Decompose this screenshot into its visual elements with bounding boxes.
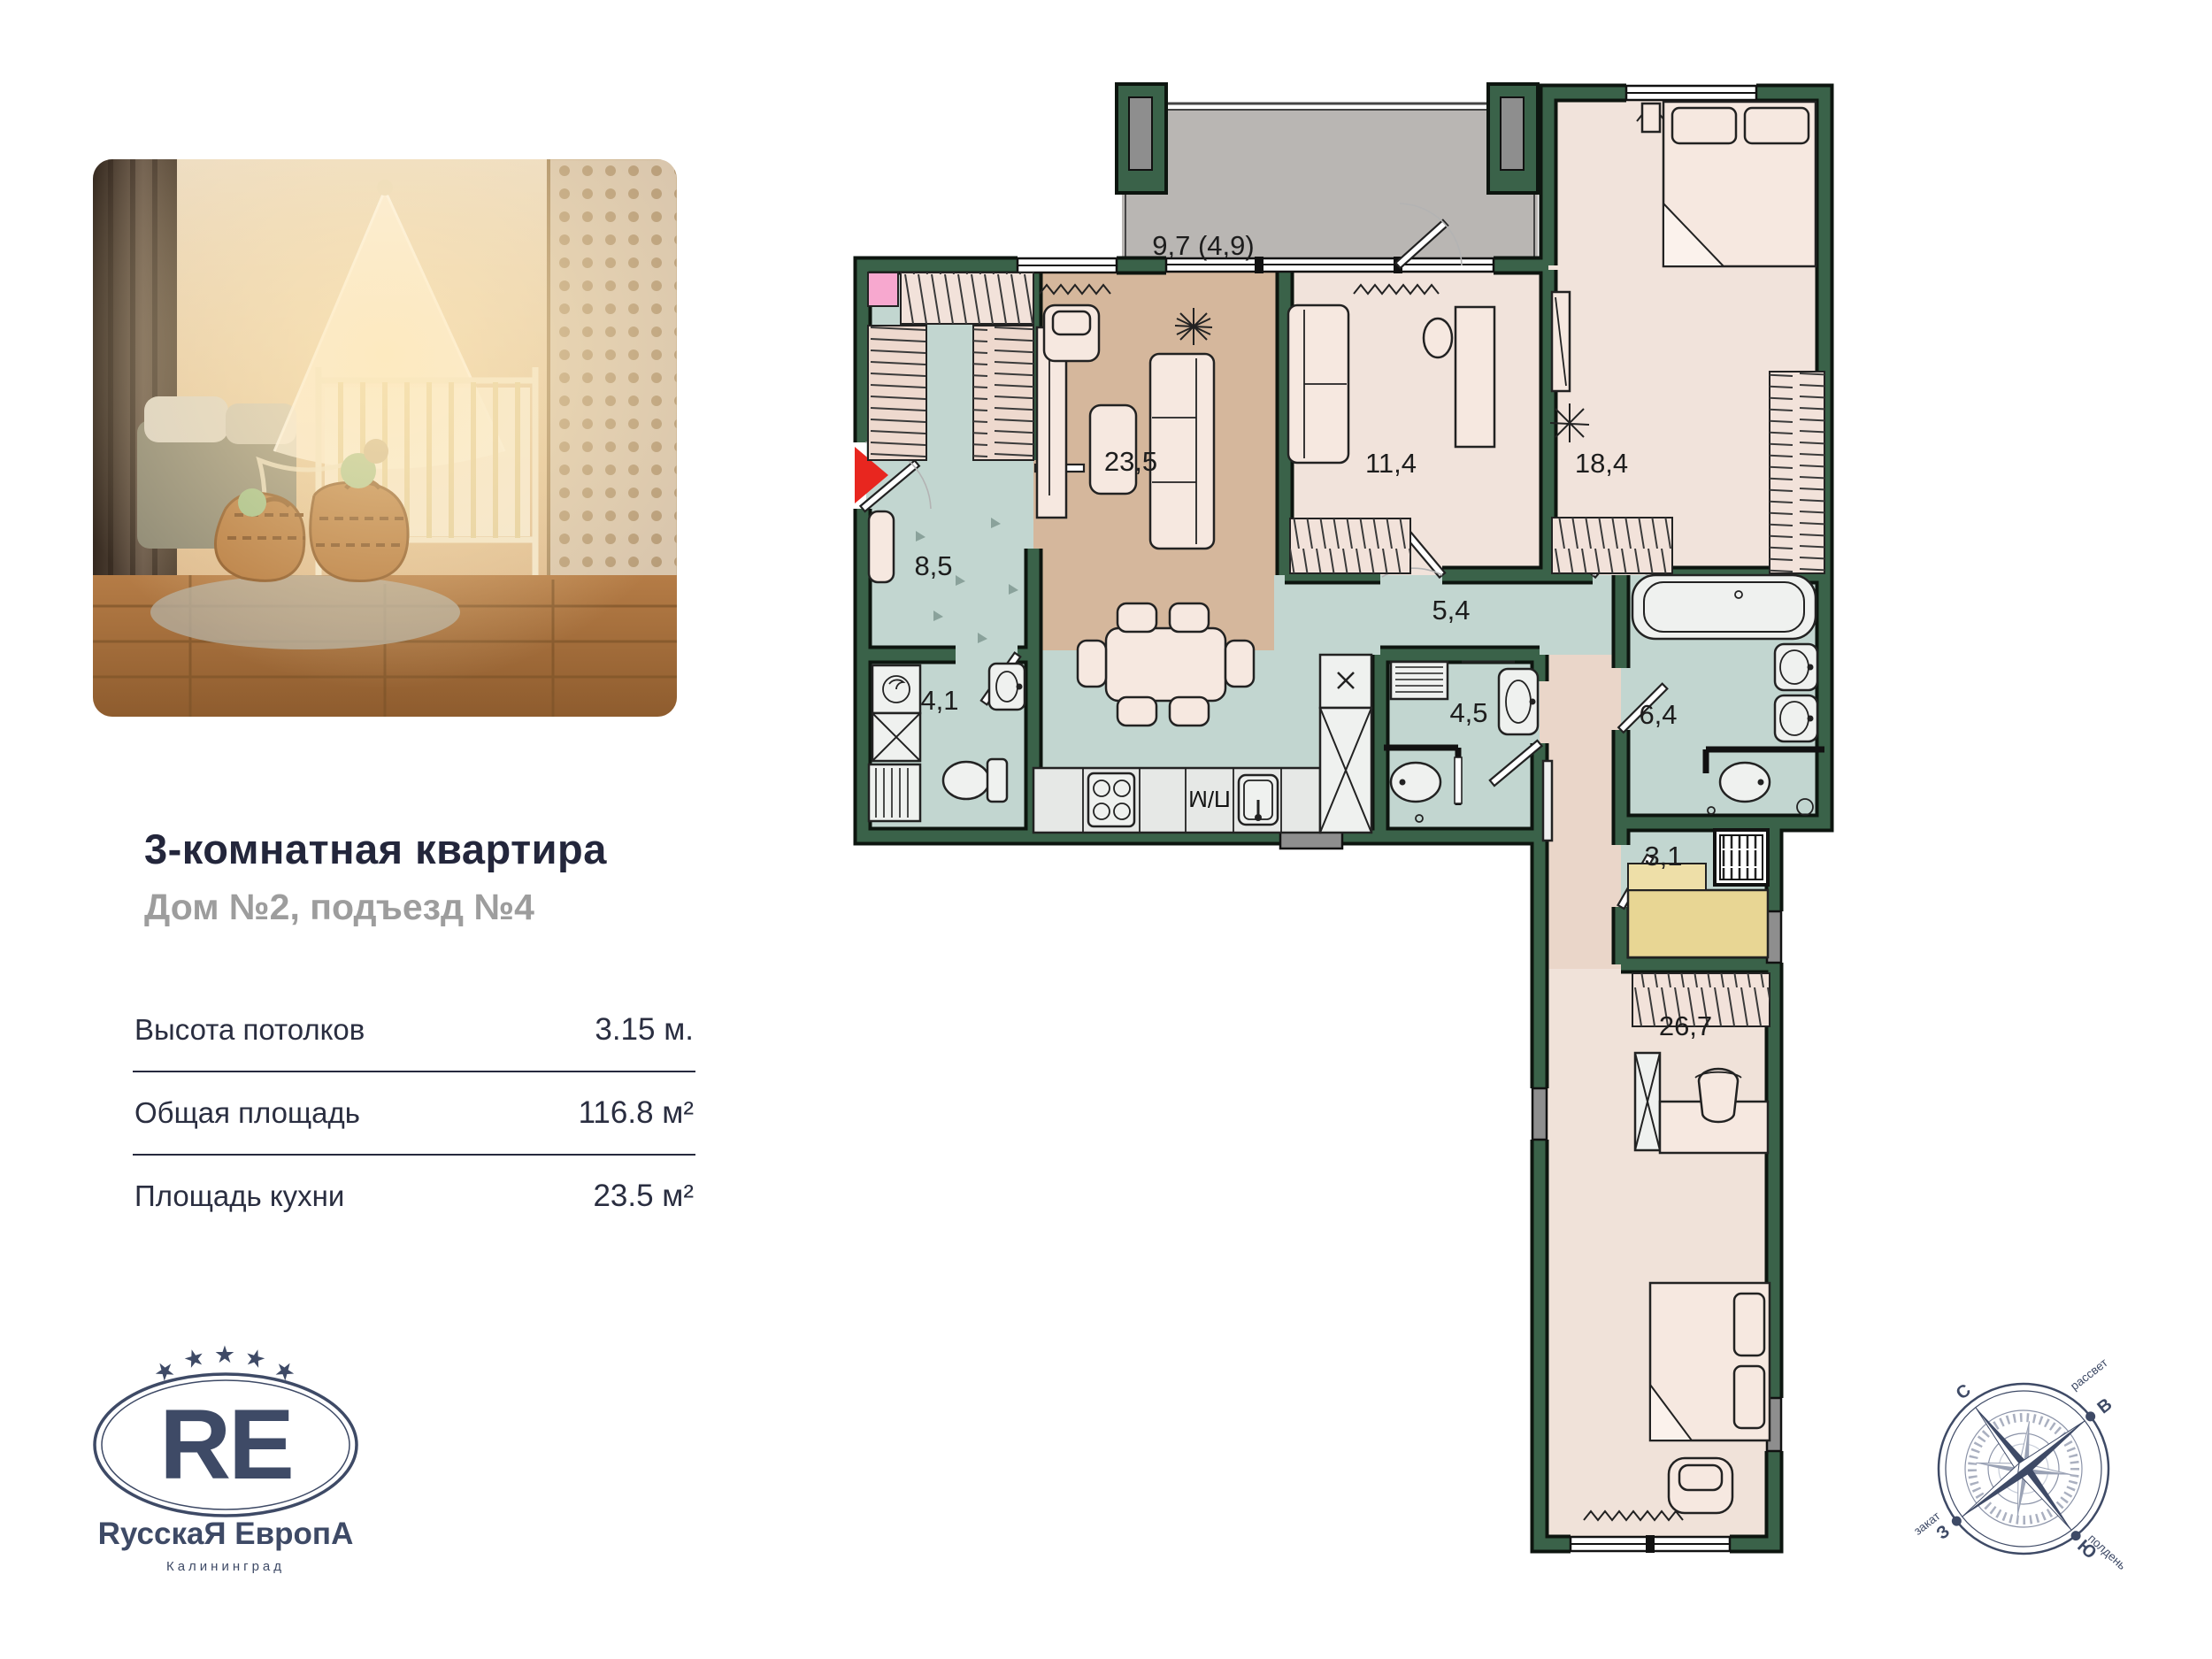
wall-block-right-upper <box>1767 911 1781 963</box>
svg-text:★: ★ <box>269 1354 302 1387</box>
nursery-photo <box>93 159 677 717</box>
room-label-wc: 4,1 <box>920 685 958 716</box>
toilet <box>943 762 989 799</box>
plant <box>1175 308 1212 345</box>
appliance-label: П/М <box>1188 786 1231 812</box>
compass-west-label: З <box>1932 1522 1953 1544</box>
spec-value: 3.15 м. <box>595 1012 694 1048</box>
room-label-entry: 8,5 <box>914 550 952 581</box>
room-label-bedroom3: 26,7 <box>1659 1010 1712 1041</box>
bathtub <box>1632 575 1816 639</box>
svg-text:★: ★ <box>214 1341 235 1368</box>
wall-block-left <box>1532 1088 1547 1140</box>
spec-value: 23.5 м² <box>593 1179 694 1214</box>
compass-east-label: В <box>2094 1394 2116 1417</box>
logo-city: Калининград <box>166 1559 285 1574</box>
room-label-living: 23,5 <box>1104 446 1157 477</box>
window-bedroom1 <box>1626 86 1756 100</box>
toilet-45 <box>1391 763 1440 802</box>
room-label-bedroom2: 11,4 <box>1365 448 1417 479</box>
room-label-shower: 6,4 <box>1639 699 1677 730</box>
logo-name: RусскаЯ ЕвропА <box>98 1517 354 1551</box>
window-entry <box>1018 258 1117 273</box>
page: 3-комнатная квартира Дом №2, подъезд №4 … <box>0 0 2212 1659</box>
page-title: 3-комнатная квартира <box>144 825 607 873</box>
nursery-photo-illustration <box>93 159 677 717</box>
desk-chair <box>1424 319 1452 357</box>
compass-north-label: С <box>1953 1380 1975 1403</box>
sauna-bench <box>1628 890 1768 957</box>
spec-label: Общая площадь <box>134 1096 360 1130</box>
svg-text:★: ★ <box>149 1354 181 1387</box>
compass-sunrise-label: рассвет <box>2068 1356 2110 1393</box>
spec-label: Высота потолков <box>134 1013 365 1047</box>
window-bedroom3 <box>1571 1535 1730 1553</box>
page-subtitle: Дом №2, подъезд №4 <box>144 887 534 928</box>
spec-row-kitchen-area: Площадь кухни 23.5 м² <box>133 1156 695 1237</box>
spec-table: Высота потолков 3.15 м. Общая площадь 11… <box>133 989 695 1237</box>
room-label-bedroom1: 18,4 <box>1575 448 1628 479</box>
room-label-sauna: 3,1 <box>1644 841 1682 872</box>
developer-logo: ★ ★ ★ ★ ★ RE RусскаЯ ЕвропА Калининград <box>87 1332 370 1593</box>
spec-row-ceiling: Высота потолков 3.15 м. <box>133 989 695 1072</box>
desk <box>1455 307 1494 447</box>
svg-text:★: ★ <box>180 1343 209 1375</box>
floor-plan: П/М <box>823 35 2212 1628</box>
spec-label: Площадь кухни <box>134 1179 344 1213</box>
spec-value: 116.8 м² <box>579 1095 694 1131</box>
room-label-corridor: 5,4 <box>1432 595 1470 626</box>
stool <box>1699 1069 1738 1122</box>
svg-text:★: ★ <box>242 1343 270 1375</box>
compass-rose: С В З Ю рассвет закат полдень <box>1860 1303 2212 1628</box>
sofa <box>1150 354 1214 549</box>
room-label-bathroom: 4,5 <box>1449 697 1487 728</box>
room-label-balcony: 9,7 (4,9) <box>1152 230 1254 261</box>
logo-monogram: RE <box>159 1389 292 1500</box>
stove <box>1088 773 1134 826</box>
spec-row-total-area: Общая площадь 116.8 м² <box>133 1072 695 1156</box>
